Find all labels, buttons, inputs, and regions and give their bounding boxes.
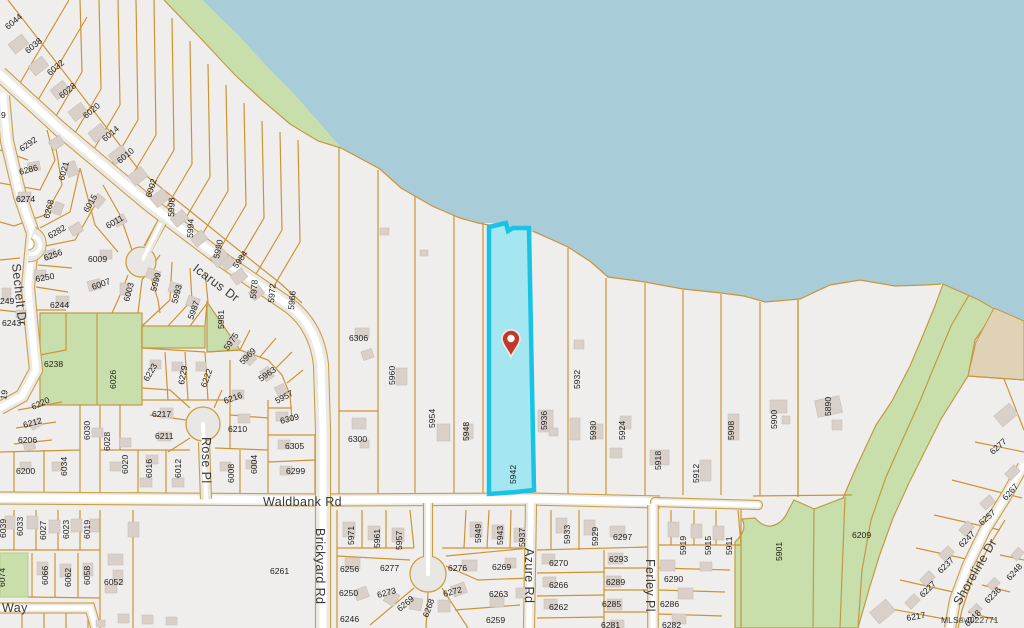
svg-text:6261: 6261 (270, 566, 289, 576)
svg-text:6074: 6074 (0, 568, 7, 587)
svg-text:6277: 6277 (380, 563, 399, 573)
svg-text:6299: 6299 (286, 466, 305, 476)
svg-text:6028: 6028 (102, 432, 112, 451)
svg-text:5949: 5949 (473, 524, 483, 543)
svg-text:6282: 6282 (662, 620, 681, 628)
svg-text:5912: 5912 (691, 464, 701, 483)
svg-text:5918: 5918 (653, 451, 663, 470)
svg-text:6019: 6019 (82, 520, 92, 539)
svg-text:6281: 6281 (601, 620, 620, 628)
svg-text:6238: 6238 (44, 359, 63, 369)
svg-text:249: 249 (0, 296, 15, 306)
svg-text:5933: 5933 (562, 525, 572, 544)
svg-text:5937: 5937 (517, 528, 527, 547)
svg-text:6290: 6290 (664, 574, 683, 584)
svg-text:5936: 5936 (539, 411, 549, 430)
svg-text:5919: 5919 (678, 536, 688, 555)
svg-text:5966: 5966 (286, 290, 298, 310)
svg-text:5948: 5948 (461, 422, 471, 441)
svg-text:Brickyard Rd: Brickyard Rd (313, 528, 327, 604)
svg-text:5942: 5942 (508, 465, 518, 484)
svg-text:6020: 6020 (120, 455, 130, 474)
svg-text:5971: 5971 (346, 526, 356, 545)
svg-text:5957: 5957 (394, 531, 404, 550)
svg-text:5900: 5900 (769, 410, 779, 429)
svg-text:6250: 6250 (339, 588, 358, 598)
svg-text:5930: 5930 (588, 421, 598, 440)
svg-text:5961: 5961 (372, 529, 382, 548)
svg-text:5954: 5954 (427, 409, 437, 428)
svg-text:6270: 6270 (549, 558, 568, 568)
svg-text:6289: 6289 (606, 577, 625, 587)
svg-text:6306: 6306 (349, 333, 368, 343)
svg-text:6269: 6269 (492, 562, 511, 572)
svg-text:MLS®4022771: MLS®4022771 (941, 615, 999, 625)
svg-text:6030: 6030 (82, 421, 92, 440)
svg-text:6023: 6023 (61, 520, 71, 539)
svg-text:6210: 6210 (228, 424, 247, 434)
svg-text:6300: 6300 (348, 434, 367, 444)
svg-text:9: 9 (1, 110, 6, 120)
svg-text:6200: 6200 (16, 466, 35, 476)
svg-text:6009: 6009 (88, 254, 107, 264)
svg-text:6246: 6246 (340, 614, 359, 624)
svg-text:5960: 5960 (387, 366, 397, 385)
svg-text:6012: 6012 (173, 459, 183, 478)
svg-text:6286: 6286 (660, 599, 679, 609)
svg-text:5890: 5890 (823, 397, 833, 416)
svg-text:6244: 6244 (50, 300, 69, 310)
svg-text:6276: 6276 (448, 563, 467, 573)
svg-text:6039: 6039 (0, 519, 8, 538)
svg-text:6206: 6206 (18, 435, 37, 445)
svg-text:Way: Way (2, 601, 28, 615)
svg-text:6027: 6027 (38, 521, 48, 540)
svg-text:6266: 6266 (549, 580, 568, 590)
svg-text:5915: 5915 (703, 536, 713, 555)
svg-text:6026: 6026 (108, 370, 118, 389)
svg-text:6062: 6062 (63, 568, 73, 587)
svg-text:6263: 6263 (489, 589, 508, 599)
svg-text:6052: 6052 (104, 577, 123, 587)
svg-text:6285: 6285 (602, 599, 621, 609)
svg-text:5972: 5972 (266, 283, 278, 303)
svg-text:6256: 6256 (340, 564, 359, 574)
svg-text:Azure Rd: Azure Rd (522, 548, 536, 603)
svg-text:Waldbank Rd: Waldbank Rd (263, 495, 342, 509)
svg-text:5943: 5943 (495, 526, 505, 545)
svg-text:5924: 5924 (617, 421, 627, 440)
svg-text:6066: 6066 (40, 566, 50, 585)
svg-text:5932: 5932 (572, 370, 582, 389)
svg-text:5908: 5908 (726, 421, 736, 440)
svg-text:5929: 5929 (590, 527, 600, 546)
svg-text:6217: 6217 (152, 409, 171, 419)
svg-text:5911: 5911 (724, 536, 734, 555)
svg-text:6058: 6058 (82, 566, 92, 585)
svg-text:6274: 6274 (16, 194, 35, 204)
svg-text:6259: 6259 (486, 615, 505, 625)
svg-text:6033: 6033 (15, 517, 25, 536)
svg-text:Rose Pl: Rose Pl (199, 437, 213, 484)
svg-text:6004: 6004 (249, 455, 259, 474)
svg-text:6305: 6305 (285, 441, 304, 451)
svg-text:6262: 6262 (549, 602, 568, 612)
svg-text:5998: 5998 (166, 197, 177, 217)
svg-text:5994: 5994 (185, 218, 196, 238)
svg-text:6209: 6209 (852, 530, 871, 540)
svg-text:6293: 6293 (609, 554, 628, 564)
svg-text:6297: 6297 (613, 532, 632, 542)
svg-text:5901: 5901 (774, 542, 784, 561)
svg-text:5978: 5978 (248, 279, 260, 299)
svg-text:6016: 6016 (144, 459, 154, 478)
svg-text:5981: 5981 (216, 310, 226, 329)
svg-text:6034: 6034 (59, 457, 69, 476)
svg-text:6008: 6008 (226, 464, 236, 483)
svg-text:6211: 6211 (155, 431, 174, 441)
svg-text:Ferley Pl: Ferley Pl (643, 559, 657, 612)
svg-text:19: 19 (0, 389, 10, 400)
